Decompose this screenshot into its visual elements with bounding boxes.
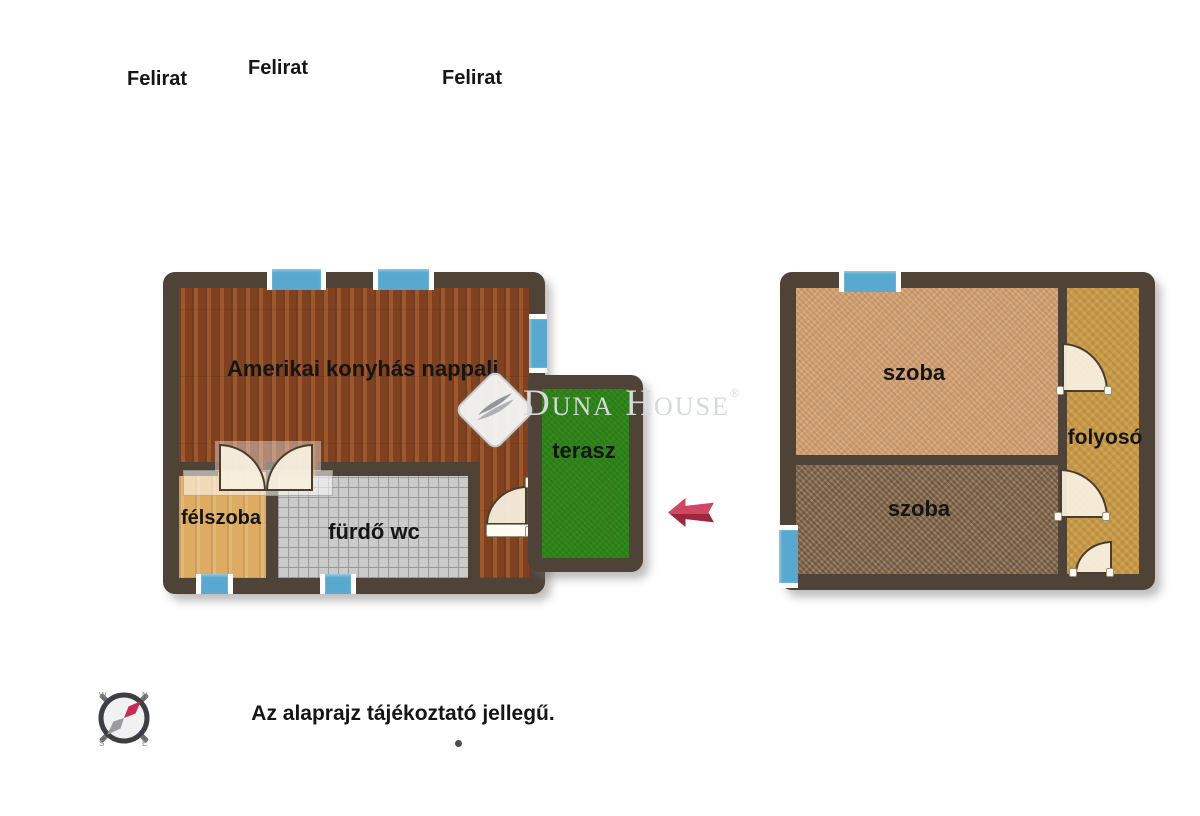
bathroom-label: fürdő wc — [316, 520, 432, 544]
wall-segment — [468, 462, 480, 578]
door-jamb — [1069, 568, 1077, 577]
floor-plan-canvas: Felirat Felirat Felirat — [0, 0, 1200, 816]
caption-label-2: Felirat — [241, 57, 315, 79]
door-jamb — [1054, 512, 1062, 521]
door-jamb — [1056, 386, 1064, 395]
wave-icon — [470, 382, 520, 432]
terrace-label: terasz — [549, 439, 619, 463]
window — [839, 271, 901, 292]
compass-north-label: N — [142, 691, 148, 700]
window — [320, 574, 356, 594]
compass-east-label: E — [142, 739, 147, 748]
watermark-brand: Duna House ® — [523, 385, 740, 422]
room-bottom-label: szoba — [884, 497, 954, 521]
room-top-label: szoba — [879, 361, 949, 385]
caption-label-1: Felirat — [120, 68, 194, 90]
registered-mark: ® — [730, 386, 740, 399]
wall-segment — [318, 462, 478, 476]
window — [267, 269, 326, 290]
corridor-label: folyosó — [1063, 426, 1147, 449]
watermark-brand-text: Duna House — [523, 385, 730, 422]
caption-label-3: Felirat — [435, 67, 509, 89]
compass-icon: N W S E — [88, 682, 160, 754]
living-room-label: Amerikai konyhás nappali — [227, 357, 495, 381]
door-jamb — [1102, 512, 1110, 521]
compass-west-label: W — [99, 691, 107, 700]
left-arrow-icon — [668, 496, 714, 529]
window — [196, 574, 233, 594]
disclaimer-text: Az alaprajz tájékoztató jellegű. — [238, 702, 568, 725]
window — [373, 269, 434, 290]
window — [779, 525, 798, 588]
compass-south-label: S — [99, 739, 104, 748]
door-jamb — [1106, 568, 1114, 577]
decorative-dot — [455, 740, 462, 747]
door-jamb — [1104, 386, 1112, 395]
window — [529, 314, 547, 373]
wall-segment — [796, 455, 1058, 465]
half-room-label: félszoba — [174, 507, 268, 529]
